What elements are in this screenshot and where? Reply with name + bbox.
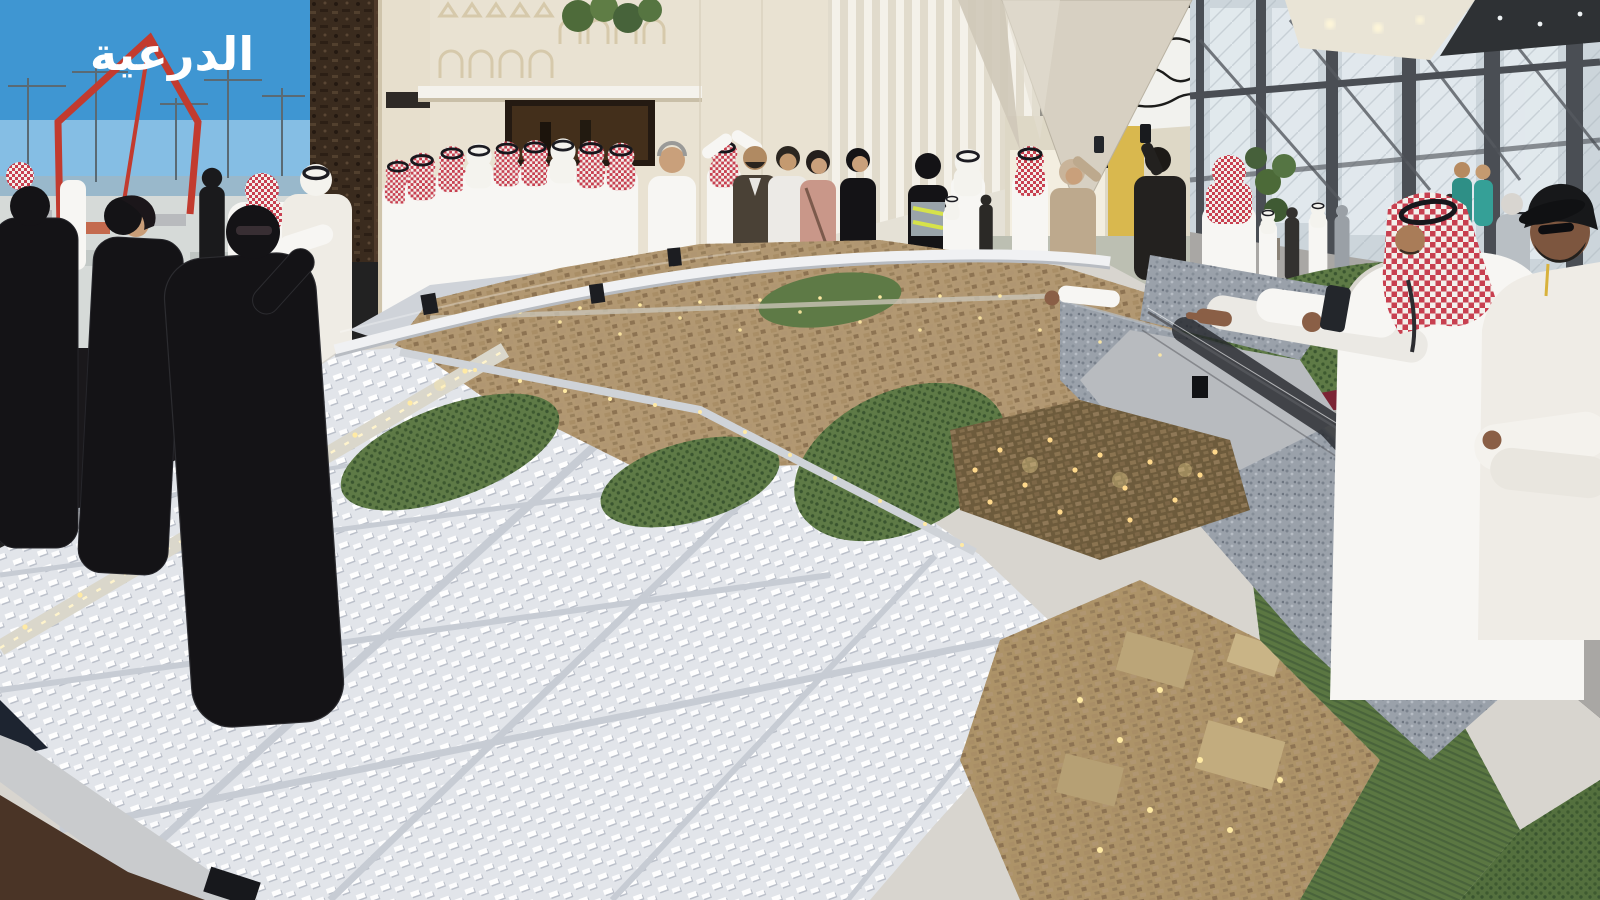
screen-arabic-title: الدرعية <box>90 27 254 81</box>
visitor-partial-shemagh <box>6 162 34 190</box>
railing-clip <box>1192 376 1208 398</box>
mezzanine-railing <box>418 86 702 98</box>
lanyard-yellow <box>1546 264 1548 296</box>
exhibition-hall-photo: الدرعية <box>0 0 1600 900</box>
scene-svg: الدرعية <box>0 0 1600 900</box>
woman-abaya-left <box>0 186 78 548</box>
